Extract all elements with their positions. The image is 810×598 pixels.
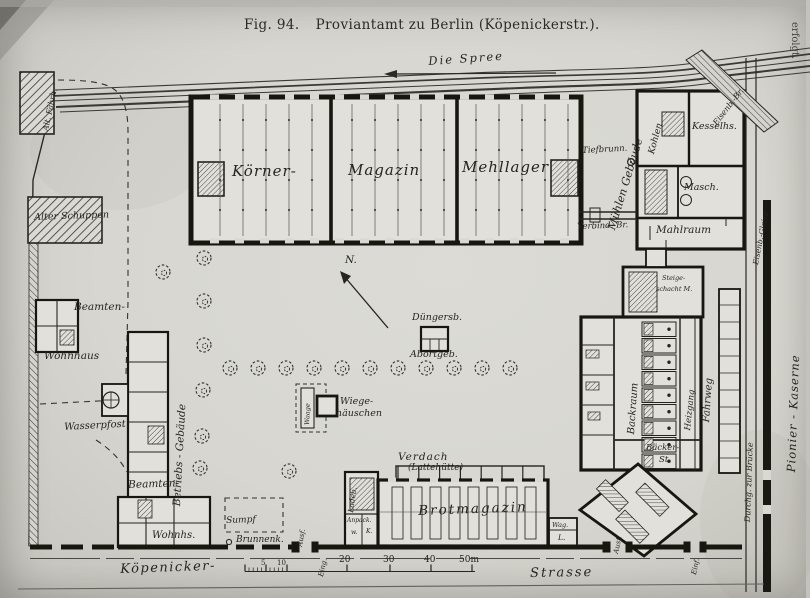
label-mahlraum: Mahlraum (656, 225, 711, 236)
scale-50m: 50m (459, 556, 479, 565)
label-baecker-1: Bäcker- (646, 444, 679, 453)
figure-number: Fig. 94. (244, 17, 300, 33)
label-wiege-2: häuschen (336, 409, 382, 419)
label-steige-1: Steige- (662, 275, 685, 282)
label-cell-w: w. (351, 530, 357, 536)
brunnen-symbol (226, 539, 231, 544)
label-anpack: Anpack. (347, 518, 372, 524)
label-verdach: Verdach (398, 452, 448, 463)
label-cell-k: K. (366, 529, 372, 535)
beamten-wohnhaus-building (36, 300, 78, 352)
label-koerner: Körner- (232, 164, 297, 179)
scale-10: 10 (277, 560, 286, 567)
trees (156, 251, 517, 478)
label-waage: Waage (304, 403, 311, 425)
label-baecker-2: St. (659, 456, 671, 465)
label-steige-2: schacht M. (656, 286, 692, 293)
label-masch: Masch. (684, 183, 719, 193)
label-sumpf: Sumpf (226, 516, 256, 526)
betriebs-gebaeude-building (102, 332, 168, 500)
label-wohnhs: Wohnhs. (152, 531, 195, 541)
label-koepenicker: Köpenicker- (120, 560, 216, 576)
label-beamten-1: Beamten- (74, 302, 125, 313)
street-edge-bottom (18, 584, 764, 589)
scale-30: 30 (383, 556, 394, 565)
label-abortgeb: Abortgeb. (410, 350, 458, 360)
figure-caption: Fig. 94.Proviantamt zu Berlin (Köpenicke… (244, 19, 616, 33)
label-brunnenk: Brunnenk. (236, 536, 284, 545)
label-magazin: Magazin (348, 163, 420, 178)
scale-20: 20 (339, 556, 350, 565)
label-verbind-br: Verbind.-Br. (577, 221, 628, 231)
label-duengersb: Düngersb. (412, 313, 462, 323)
north-arrow (344, 276, 388, 328)
plan-linework (0, 0, 810, 598)
scale-40: 40 (424, 556, 435, 565)
north-label: N. (345, 255, 357, 266)
scale-5: 5 (261, 560, 265, 567)
label-mehllager: Mehllager (462, 160, 549, 175)
diagonal-wing-building (549, 464, 696, 556)
label-lattehuette: (Lattehütte) (408, 464, 463, 473)
duengersb-abort-building (421, 327, 448, 351)
river-flow-arrow (394, 73, 556, 74)
label-alter-schuppen: Alter Schuppen (34, 210, 109, 222)
label-wohnhaus: Wohnhaus (44, 351, 99, 362)
page-margin-text: erfolgt. (789, 22, 799, 59)
scanned-site-plan: Fig. 94.Proviantamt zu Berlin (Köpenicke… (0, 0, 810, 598)
label-wiege-1: Wiege- (340, 397, 373, 407)
label-wag-l: L. (558, 534, 565, 542)
label-wag: Wag. (552, 522, 568, 529)
figure-title: Proviantamt zu Berlin (Köpenickerstr.). (316, 17, 600, 33)
label-beamten-2: Beamten- (128, 478, 179, 490)
baeckerei-building (581, 249, 703, 470)
label-tiefbrunn: Tiefbrunn. (582, 145, 628, 156)
label-strasse: Strasse (530, 566, 593, 580)
